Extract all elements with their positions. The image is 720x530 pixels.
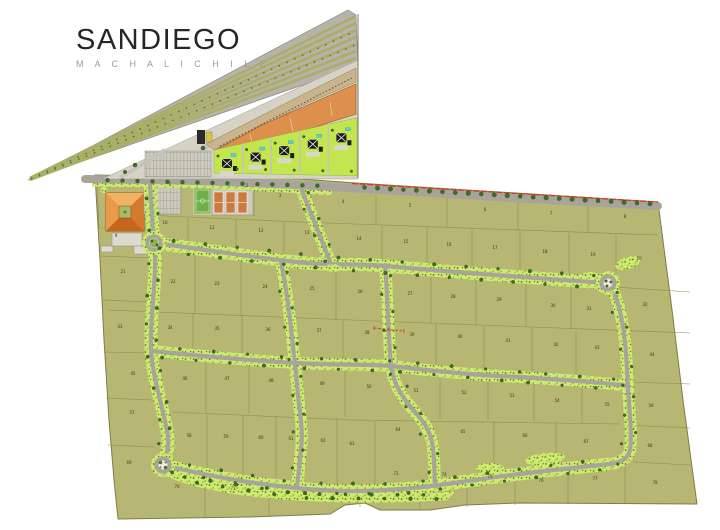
tree-icon	[401, 188, 405, 192]
lot-number: 32	[642, 302, 648, 307]
lot-number: 68	[647, 443, 653, 448]
lot-number: 38	[364, 330, 370, 335]
tree-icon	[453, 190, 457, 194]
lot-number: 40	[457, 334, 463, 339]
tree-icon	[398, 370, 401, 373]
tree-icon	[518, 468, 521, 471]
tree-icon	[292, 431, 295, 434]
tree-icon	[616, 291, 619, 294]
lot-number: 48	[268, 378, 274, 383]
tree-icon	[272, 492, 276, 496]
tree-icon	[518, 370, 521, 373]
tree-icon	[317, 217, 320, 220]
tree-icon	[219, 469, 222, 472]
tree-icon	[320, 482, 323, 485]
lot-number: 41	[505, 338, 511, 343]
patio	[220, 171, 234, 176]
tree-icon	[147, 262, 150, 265]
tree-icon	[528, 269, 532, 273]
lot-number: 72	[302, 491, 308, 496]
tree-icon	[384, 271, 388, 275]
lot-number: 33	[117, 324, 123, 329]
tree-icon	[202, 476, 205, 479]
tree-icon	[280, 355, 283, 358]
tree-icon	[285, 183, 289, 187]
tree-icon	[466, 376, 469, 379]
lot-number: 50	[366, 384, 372, 389]
site-plan-map: 1234567891011121314151617181920212223242…	[0, 0, 720, 530]
tree-icon	[427, 189, 432, 194]
tree-icon	[178, 347, 181, 350]
tree-icon	[188, 464, 191, 467]
tree-icon	[320, 357, 323, 360]
tree-icon	[635, 201, 639, 205]
lot-number: 4	[342, 199, 345, 204]
tree-icon	[226, 181, 230, 185]
tree-icon	[432, 263, 436, 267]
tree-icon	[389, 373, 392, 376]
lot-number: 65	[460, 429, 466, 434]
tree-icon	[335, 492, 338, 495]
site-plan-page: SANDIEGO M A C H A L I C H I L E	[0, 0, 720, 530]
lot-number: 12	[258, 228, 264, 233]
lot-number: 67	[583, 439, 589, 444]
tree-icon	[236, 246, 239, 249]
tree-icon	[383, 482, 386, 485]
lot-number: 31	[586, 306, 592, 311]
tree-icon	[450, 364, 453, 367]
lot-number: 36	[265, 327, 271, 332]
soccer-field	[194, 188, 211, 214]
tree-icon	[151, 179, 155, 183]
tree-icon	[315, 184, 319, 188]
tree-icon	[299, 252, 302, 255]
tree-icon	[406, 385, 409, 388]
tree-icon	[218, 256, 222, 260]
tree-icon	[265, 486, 268, 489]
tree-icon	[394, 346, 397, 349]
tree-icon	[648, 202, 652, 206]
lot-number: 13	[304, 230, 310, 235]
lot-number: 78	[652, 480, 658, 485]
tree-icon	[288, 358, 291, 361]
tree-icon	[561, 384, 564, 387]
tree-icon	[344, 493, 347, 496]
tree-icon	[155, 339, 158, 342]
tree-icon	[503, 480, 506, 483]
patio	[249, 165, 263, 170]
tennis-courts	[212, 189, 253, 215]
tree-icon	[422, 493, 425, 496]
tree-icon	[318, 492, 322, 496]
tree-icon	[453, 475, 456, 478]
patio	[277, 158, 291, 163]
tree-icon	[286, 490, 290, 494]
tree-icon	[292, 394, 295, 397]
tree-icon	[492, 193, 496, 197]
roundabout-northwest	[142, 231, 166, 255]
tree-icon	[596, 199, 600, 203]
lot-number: 14	[356, 236, 362, 241]
tree-icon	[383, 329, 386, 332]
tree-icon	[351, 482, 354, 485]
lot-number: 43	[594, 345, 600, 350]
tree-icon	[419, 433, 422, 436]
tree-icon	[484, 368, 487, 371]
tree-icon	[255, 182, 259, 186]
tree-icon	[634, 431, 637, 434]
lot-number: 19	[590, 252, 596, 257]
tree-icon	[505, 193, 510, 198]
lot-number: 2	[246, 183, 249, 188]
lot-number: 37	[316, 328, 322, 333]
tree-icon	[464, 265, 467, 268]
tree-icon	[630, 365, 633, 368]
pool	[317, 134, 322, 137]
tree-icon	[623, 414, 626, 417]
lot-number: 6	[484, 207, 487, 212]
tree-icon	[433, 373, 436, 376]
tree-icon	[168, 427, 171, 430]
lot-number: 58	[186, 433, 192, 438]
tree-icon	[622, 200, 627, 205]
tree-icon	[181, 180, 185, 184]
tree-icon	[416, 274, 419, 277]
tree-icon	[157, 442, 160, 445]
tree-icon	[419, 412, 422, 415]
lot-number: 71	[230, 486, 236, 491]
tree-icon	[303, 367, 306, 370]
tree-icon	[500, 379, 503, 382]
tree-icon	[352, 269, 355, 272]
lot-number: 69	[126, 460, 132, 465]
lot-number: 63	[349, 441, 355, 446]
tree-icon	[592, 274, 595, 277]
tree-icon	[612, 378, 615, 381]
tree-icon	[291, 307, 294, 310]
tree-icon	[598, 468, 601, 471]
lot-number: 59	[223, 434, 229, 439]
tree-icon	[303, 208, 306, 211]
tree-icon	[414, 188, 418, 192]
tree-icon	[195, 359, 198, 362]
tree-icon	[270, 183, 274, 187]
tree-icon	[313, 234, 316, 237]
lot-number: 53	[509, 393, 515, 398]
lot-number: 44	[649, 352, 655, 357]
lot-number: 64	[395, 427, 401, 432]
tree-icon	[544, 196, 549, 201]
tree-icon	[531, 195, 535, 199]
lot-number: 17	[492, 245, 498, 250]
plan-title-block: SANDIEGO M A C H A L I C H I L E	[76, 24, 271, 69]
tree-icon	[172, 239, 176, 243]
tree-icon	[221, 485, 224, 488]
tree-icon	[148, 229, 151, 232]
lot-number: 18	[542, 249, 548, 254]
lot-number: 45	[130, 371, 136, 376]
tree-icon	[422, 480, 425, 483]
tree-icon	[570, 197, 574, 201]
tree-icon	[535, 476, 538, 479]
tree-icon	[383, 497, 386, 500]
tree-icon	[337, 256, 341, 260]
tree-icon	[621, 384, 624, 387]
lot-number: 22	[170, 279, 176, 284]
tree-icon	[388, 360, 391, 363]
tree-icon	[337, 368, 340, 371]
lot-number: 20	[636, 256, 642, 261]
lot-number: 28	[450, 294, 456, 299]
lot-number: 61	[288, 436, 294, 441]
lot-number: 76	[538, 478, 544, 483]
lot-number: 34	[167, 325, 173, 330]
tree-icon	[371, 369, 374, 372]
lot-number: 47	[224, 376, 230, 381]
lot-number: 24	[262, 284, 268, 289]
lot-number: 16	[446, 242, 452, 247]
tree-icon	[296, 342, 299, 345]
lot-number: 7	[550, 211, 553, 216]
tree-icon	[511, 280, 514, 283]
tree-icon	[260, 487, 263, 490]
tree-icon	[302, 413, 305, 416]
housing-plot	[300, 124, 329, 175]
tree-icon	[566, 472, 569, 475]
tree-icon	[301, 449, 304, 452]
tree-icon	[159, 369, 162, 372]
tree-icon	[305, 496, 308, 499]
lot-number: 35	[214, 326, 220, 331]
tree-icon	[146, 294, 149, 297]
lot-number: 52	[461, 390, 467, 395]
plan-subtitle: M A C H A L I C H I L E	[76, 59, 271, 69]
patio	[306, 152, 320, 157]
tree-icon	[466, 191, 471, 196]
tree-icon	[550, 464, 553, 467]
tree-icon	[146, 355, 149, 358]
tree-icon	[479, 192, 483, 196]
tree-icon	[416, 362, 419, 365]
tree-icon	[155, 306, 158, 309]
tree-icon	[328, 243, 331, 246]
tree-icon	[581, 460, 584, 463]
lot-number: 66	[522, 433, 528, 438]
tree-icon	[439, 487, 442, 490]
tree-icon	[407, 491, 410, 494]
tree-icon	[557, 197, 561, 201]
lot-number: 42	[553, 342, 559, 347]
tree-icon	[291, 467, 294, 470]
tree-icon	[448, 276, 451, 279]
lot-number: 10	[162, 220, 168, 225]
tree-icon	[609, 199, 613, 203]
tree-icon	[363, 185, 367, 189]
lot-number: 26	[357, 289, 363, 294]
tree-icon	[228, 361, 231, 364]
lot-number: 77	[592, 476, 598, 481]
tree-icon	[262, 364, 265, 367]
tree-icon	[409, 497, 413, 501]
tree-icon	[428, 471, 431, 474]
tree-icon	[435, 497, 439, 501]
lot-number: 1	[169, 182, 172, 187]
tree-icon	[152, 387, 155, 390]
lot-number: 51	[413, 388, 419, 393]
tree-icon	[267, 249, 271, 253]
tree-icon	[331, 496, 335, 500]
plan-title: SANDIEGO	[76, 24, 271, 57]
tree-icon	[209, 479, 213, 483]
tree-icon	[247, 489, 251, 493]
lot-number: 27	[407, 291, 413, 296]
lot-number: 21	[120, 269, 126, 274]
tree-icon	[307, 191, 310, 194]
tree-icon	[241, 182, 245, 186]
tree-icon	[136, 179, 140, 183]
tree-icon	[187, 253, 190, 256]
tree-icon	[369, 258, 372, 261]
tree-icon	[300, 183, 304, 187]
lot-number: 30	[550, 303, 556, 308]
tree-icon	[620, 442, 623, 445]
tree-icon	[211, 181, 215, 185]
tree-icon	[375, 186, 379, 190]
tree-icon	[158, 247, 161, 250]
tree-icon	[160, 356, 163, 359]
tree-icon	[157, 212, 160, 215]
lot-number: 5	[409, 203, 412, 208]
lot-number: 57	[129, 410, 135, 415]
tree-icon	[471, 484, 474, 487]
lot-number: 55	[604, 402, 610, 407]
tree-icon	[183, 475, 186, 478]
pool	[345, 128, 350, 131]
tree-icon	[300, 375, 303, 378]
lot-number: 70	[174, 484, 180, 489]
tree-icon	[170, 471, 173, 474]
tree-icon	[286, 271, 289, 274]
tree-icon	[250, 259, 253, 262]
tree-icon	[121, 179, 125, 183]
tree-icon	[479, 278, 483, 282]
tree-icon	[575, 285, 579, 289]
tree-icon	[526, 381, 529, 384]
tree-icon	[619, 348, 622, 351]
tree-icon	[544, 372, 547, 375]
tree-icon	[282, 263, 285, 266]
lot-number: 54	[554, 398, 560, 403]
tree-icon	[380, 293, 383, 296]
tree-icon	[156, 279, 159, 282]
tree-icon	[583, 198, 588, 203]
pool	[288, 141, 293, 144]
tree-icon	[324, 260, 327, 263]
tree-icon	[401, 261, 404, 264]
lot-number: 46	[182, 376, 188, 381]
tree-icon	[195, 481, 199, 485]
tree-icon	[370, 493, 374, 497]
tree-icon	[391, 310, 394, 313]
tree-icon	[212, 350, 215, 353]
tree-icon	[560, 272, 563, 275]
tree-icon	[625, 326, 628, 329]
lot-number: 74	[441, 472, 447, 477]
tree-icon	[389, 274, 392, 277]
tree-icon	[578, 375, 581, 378]
lot-number: 56	[648, 403, 654, 408]
lot-number: 60	[258, 435, 264, 440]
lot-number: 29	[496, 297, 502, 302]
tree-icon	[145, 323, 148, 326]
tree-icon	[594, 386, 597, 389]
tree-icon	[436, 452, 439, 455]
tree-icon	[611, 311, 614, 314]
tree-icon	[283, 479, 286, 482]
tree-icon	[204, 242, 207, 245]
tree-icon	[396, 493, 400, 497]
tree-icon	[283, 326, 286, 329]
tree-icon	[518, 194, 522, 198]
tree-icon	[388, 187, 393, 192]
tree-icon	[544, 283, 547, 286]
lot-number: 25	[309, 286, 315, 291]
lot-number: 3	[279, 193, 282, 198]
lot-number: 11	[209, 225, 215, 230]
tree-icon	[440, 190, 444, 194]
tree-icon	[106, 178, 110, 182]
tree-icon	[405, 405, 408, 408]
tree-icon	[145, 197, 148, 200]
lot-number: 62	[320, 438, 326, 443]
tree-icon	[632, 395, 635, 398]
tree-icon	[616, 463, 619, 466]
lot-number: 15	[403, 239, 409, 244]
lot-number: 49	[319, 381, 325, 386]
tree-icon	[158, 418, 161, 421]
tree-icon	[497, 267, 500, 270]
lot-number: 75	[487, 474, 493, 479]
pool	[260, 147, 265, 150]
tree-icon	[354, 358, 357, 361]
pool	[231, 154, 236, 157]
lot-number: 39	[409, 332, 415, 337]
tree-icon	[357, 497, 361, 501]
tree-icon	[251, 474, 254, 477]
lot-number: 73	[393, 471, 399, 476]
lot-number: 8	[624, 214, 627, 219]
tree-icon	[314, 266, 318, 270]
patio	[334, 145, 348, 150]
tree-icon	[278, 290, 281, 293]
lot-number: 9	[115, 233, 118, 238]
lot-number: 23	[214, 281, 220, 286]
tree-icon	[196, 181, 200, 185]
tree-icon	[246, 353, 249, 356]
tree-icon	[165, 400, 168, 403]
